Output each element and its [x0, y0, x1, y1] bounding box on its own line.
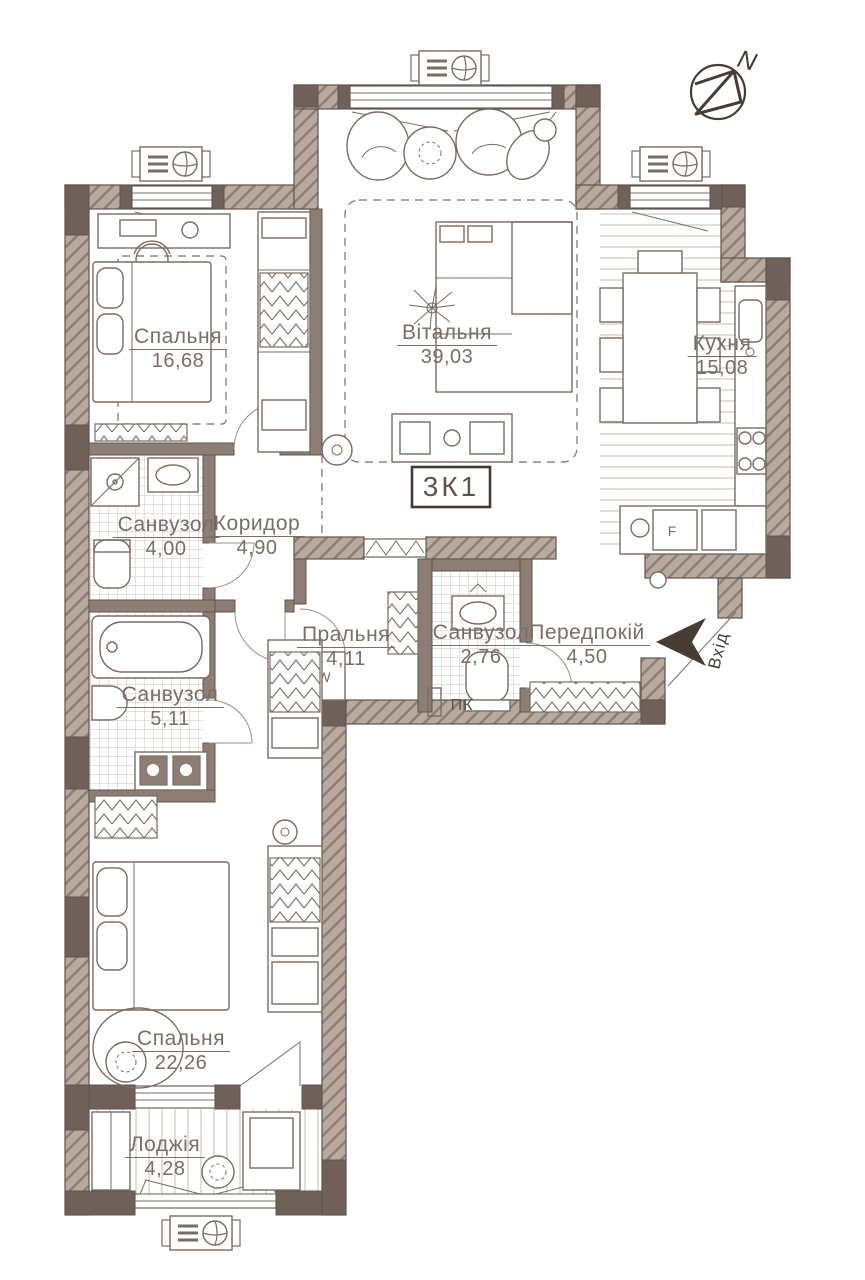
room-area: 4,90	[209, 538, 305, 559]
fridge-label: F	[668, 523, 677, 539]
room-name: Санвузол	[113, 514, 220, 538]
room-label-entry-hall: Передпокій 4,50	[524, 622, 650, 668]
room-label-bedroom-1: Спальня 16,68	[129, 326, 227, 372]
room-name: Лоджія	[125, 1134, 205, 1158]
room-area: 15,08	[688, 358, 757, 379]
room-label-bathroom-2: Санвузол 2,76	[428, 622, 535, 668]
room-name: Передпокій	[524, 622, 650, 646]
room-label-kitchen: Кухня 15,08	[688, 333, 757, 379]
floor-plan: F W ПК	[0, 0, 865, 1280]
room-name: Пральня	[297, 624, 395, 648]
north-label: N	[734, 45, 760, 77]
room-name: Спальня	[129, 326, 227, 350]
north-arrow-icon: N	[691, 45, 760, 119]
ac-unit-icon	[162, 1216, 240, 1250]
unit-label: 3К1	[423, 471, 479, 502]
entry-hall-wardrobe	[530, 682, 640, 712]
room-area: 4,11	[297, 649, 395, 670]
room-area: 2,76	[428, 647, 535, 668]
ac-unit-icon	[632, 147, 710, 181]
room-label-corridor: Коридор 4,90	[209, 513, 305, 559]
room-name: Кухня	[688, 333, 757, 357]
room-label-bathroom-1: Санвузол 4,00	[113, 514, 220, 560]
room-label-bathroom-3: Санвузол 5,11	[117, 684, 224, 730]
unit-badge: 3К1	[412, 467, 490, 507]
room-area: 16,68	[129, 351, 227, 372]
room-name: Спальня	[132, 1028, 230, 1052]
room-area: 22,26	[132, 1053, 230, 1074]
ac-unit-icon	[411, 51, 489, 85]
room-area: 5,11	[117, 709, 224, 730]
kitchen-furniture: F	[600, 251, 766, 588]
entrance-label: Вхід	[704, 630, 731, 671]
room-name: Санвузол	[428, 622, 535, 646]
room-area: 4,28	[125, 1159, 205, 1180]
room-name: Коридор	[209, 513, 305, 537]
room-area: 4,00	[113, 539, 220, 560]
ac-unit-icon	[132, 147, 210, 181]
room-label-living-room: Вітальня 39,03	[397, 322, 497, 368]
room-area: 4,50	[524, 647, 650, 668]
room-label-bedroom-2: Спальня 22,26	[132, 1028, 230, 1074]
entrance-marker: Вхід	[656, 618, 732, 671]
room-name: Санвузол	[117, 684, 224, 708]
room-name: Вітальня	[397, 322, 497, 346]
room-area: 39,03	[397, 347, 497, 368]
living-room-furniture	[322, 109, 577, 465]
room-label-loggia: Лоджія 4,28	[125, 1134, 205, 1180]
room-label-laundry: Пральня 4,11	[297, 624, 395, 670]
fire-cabinet-label: ПК	[451, 697, 474, 714]
